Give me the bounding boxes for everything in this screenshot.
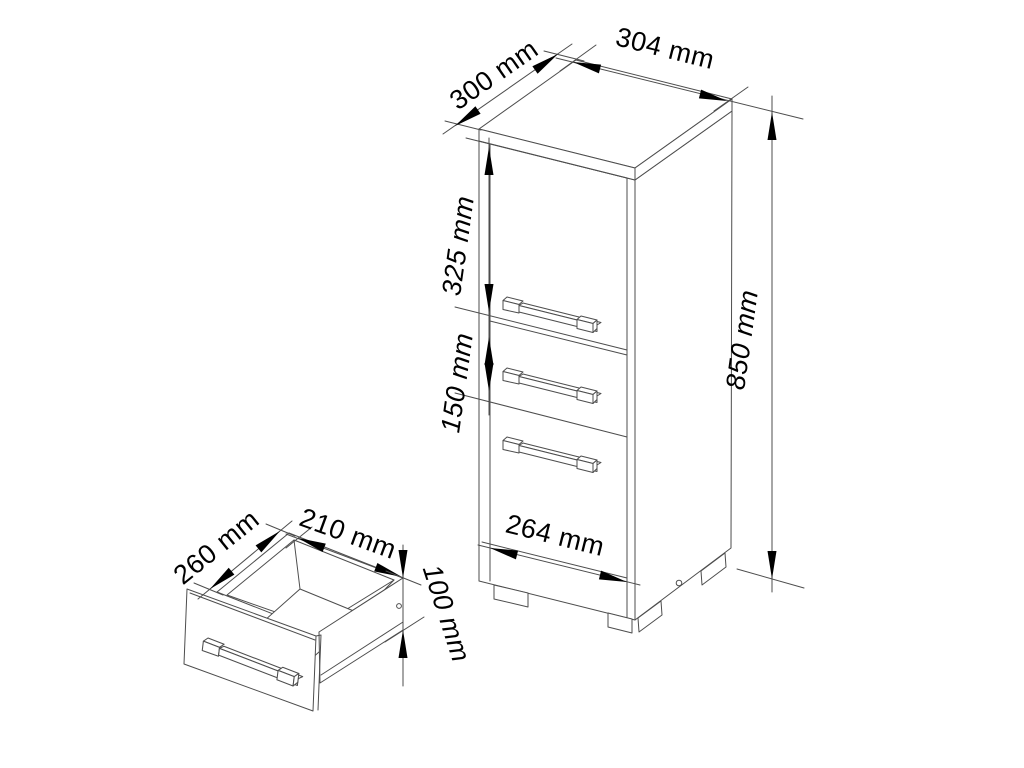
dim-label-150: 150 mm — [435, 331, 479, 435]
dim-label-304: 304 mm — [613, 22, 718, 75]
dim-cabinet-total-height: 850 mm — [720, 96, 804, 592]
dim-label-325: 325 mm — [436, 194, 480, 298]
cabinet-right-face — [635, 111, 732, 620]
page: 300 mm 304 mm 850 mm 325 mm — [0, 0, 1024, 768]
dim-label-100: 100 mm — [417, 561, 477, 666]
technical-drawing-canvas: 300 mm 304 mm 850 mm 325 mm — [0, 0, 1024, 768]
